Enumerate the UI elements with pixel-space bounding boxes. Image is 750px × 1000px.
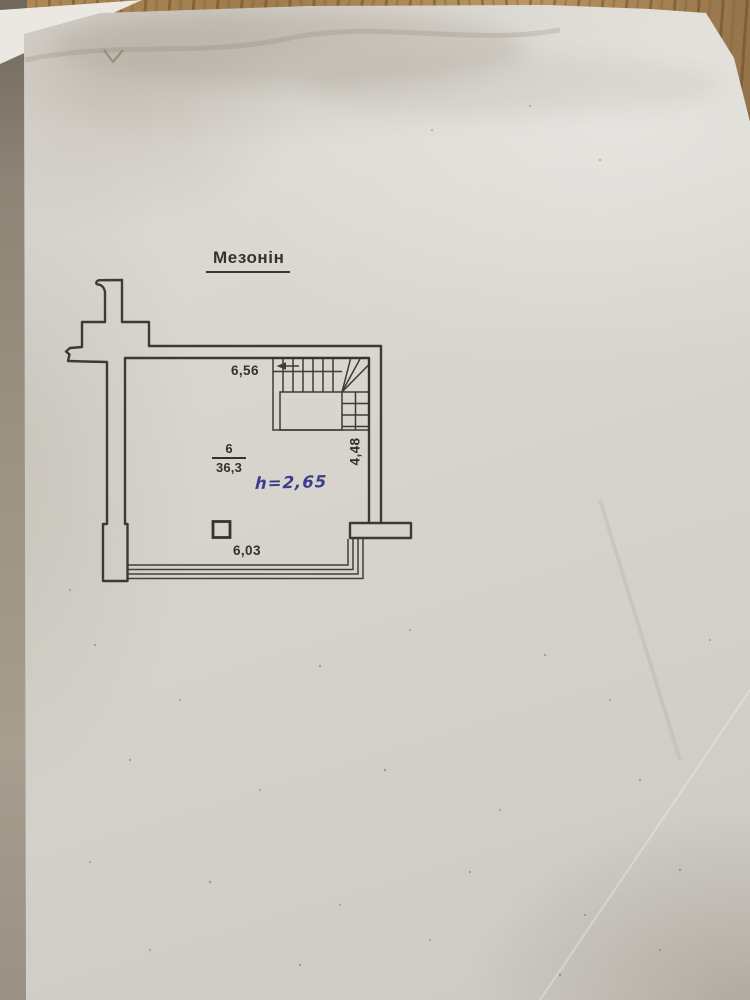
paper-crease-2 [600, 500, 680, 760]
paper-stain-edge [25, 30, 560, 60]
room-area-label: 36,3 [212, 459, 246, 475]
floorplan-drawing [0, 0, 750, 1000]
photo-scene: Мезонін 6,56 4,48 6,03 6 36,3 h=2,65 [0, 0, 750, 1000]
paper-sheet: Мезонін 6,56 4,48 6,03 6 36,3 h=2,65 [0, 0, 750, 1000]
room-label: 6 36,3 [212, 441, 246, 475]
paper-artifacts [25, 30, 750, 1000]
stair-direction-arrow-icon [277, 362, 287, 370]
dimension-bottom-label: 6,03 [233, 543, 261, 558]
wall-footing-bar [350, 523, 411, 538]
paper-speckles [69, 105, 711, 976]
room-number-label: 6 [212, 441, 246, 459]
chimney-pillar [96, 280, 149, 346]
plan-title: Мезонін [206, 248, 290, 273]
dimension-top-label: 6,56 [231, 363, 259, 378]
paper-crease [540, 690, 750, 1000]
staircase [273, 358, 369, 430]
left-wall-inner [125, 358, 128, 581]
left-wall-outer [66, 322, 127, 581]
dimension-right-label: 4,48 [348, 434, 363, 470]
under-sheet-left-edge [0, 0, 27, 1000]
handwritten-height-note: h=2,65 [255, 472, 328, 493]
column-marker [213, 522, 230, 538]
stair-landing [280, 392, 342, 430]
top-right-wall-outer [149, 346, 381, 523]
